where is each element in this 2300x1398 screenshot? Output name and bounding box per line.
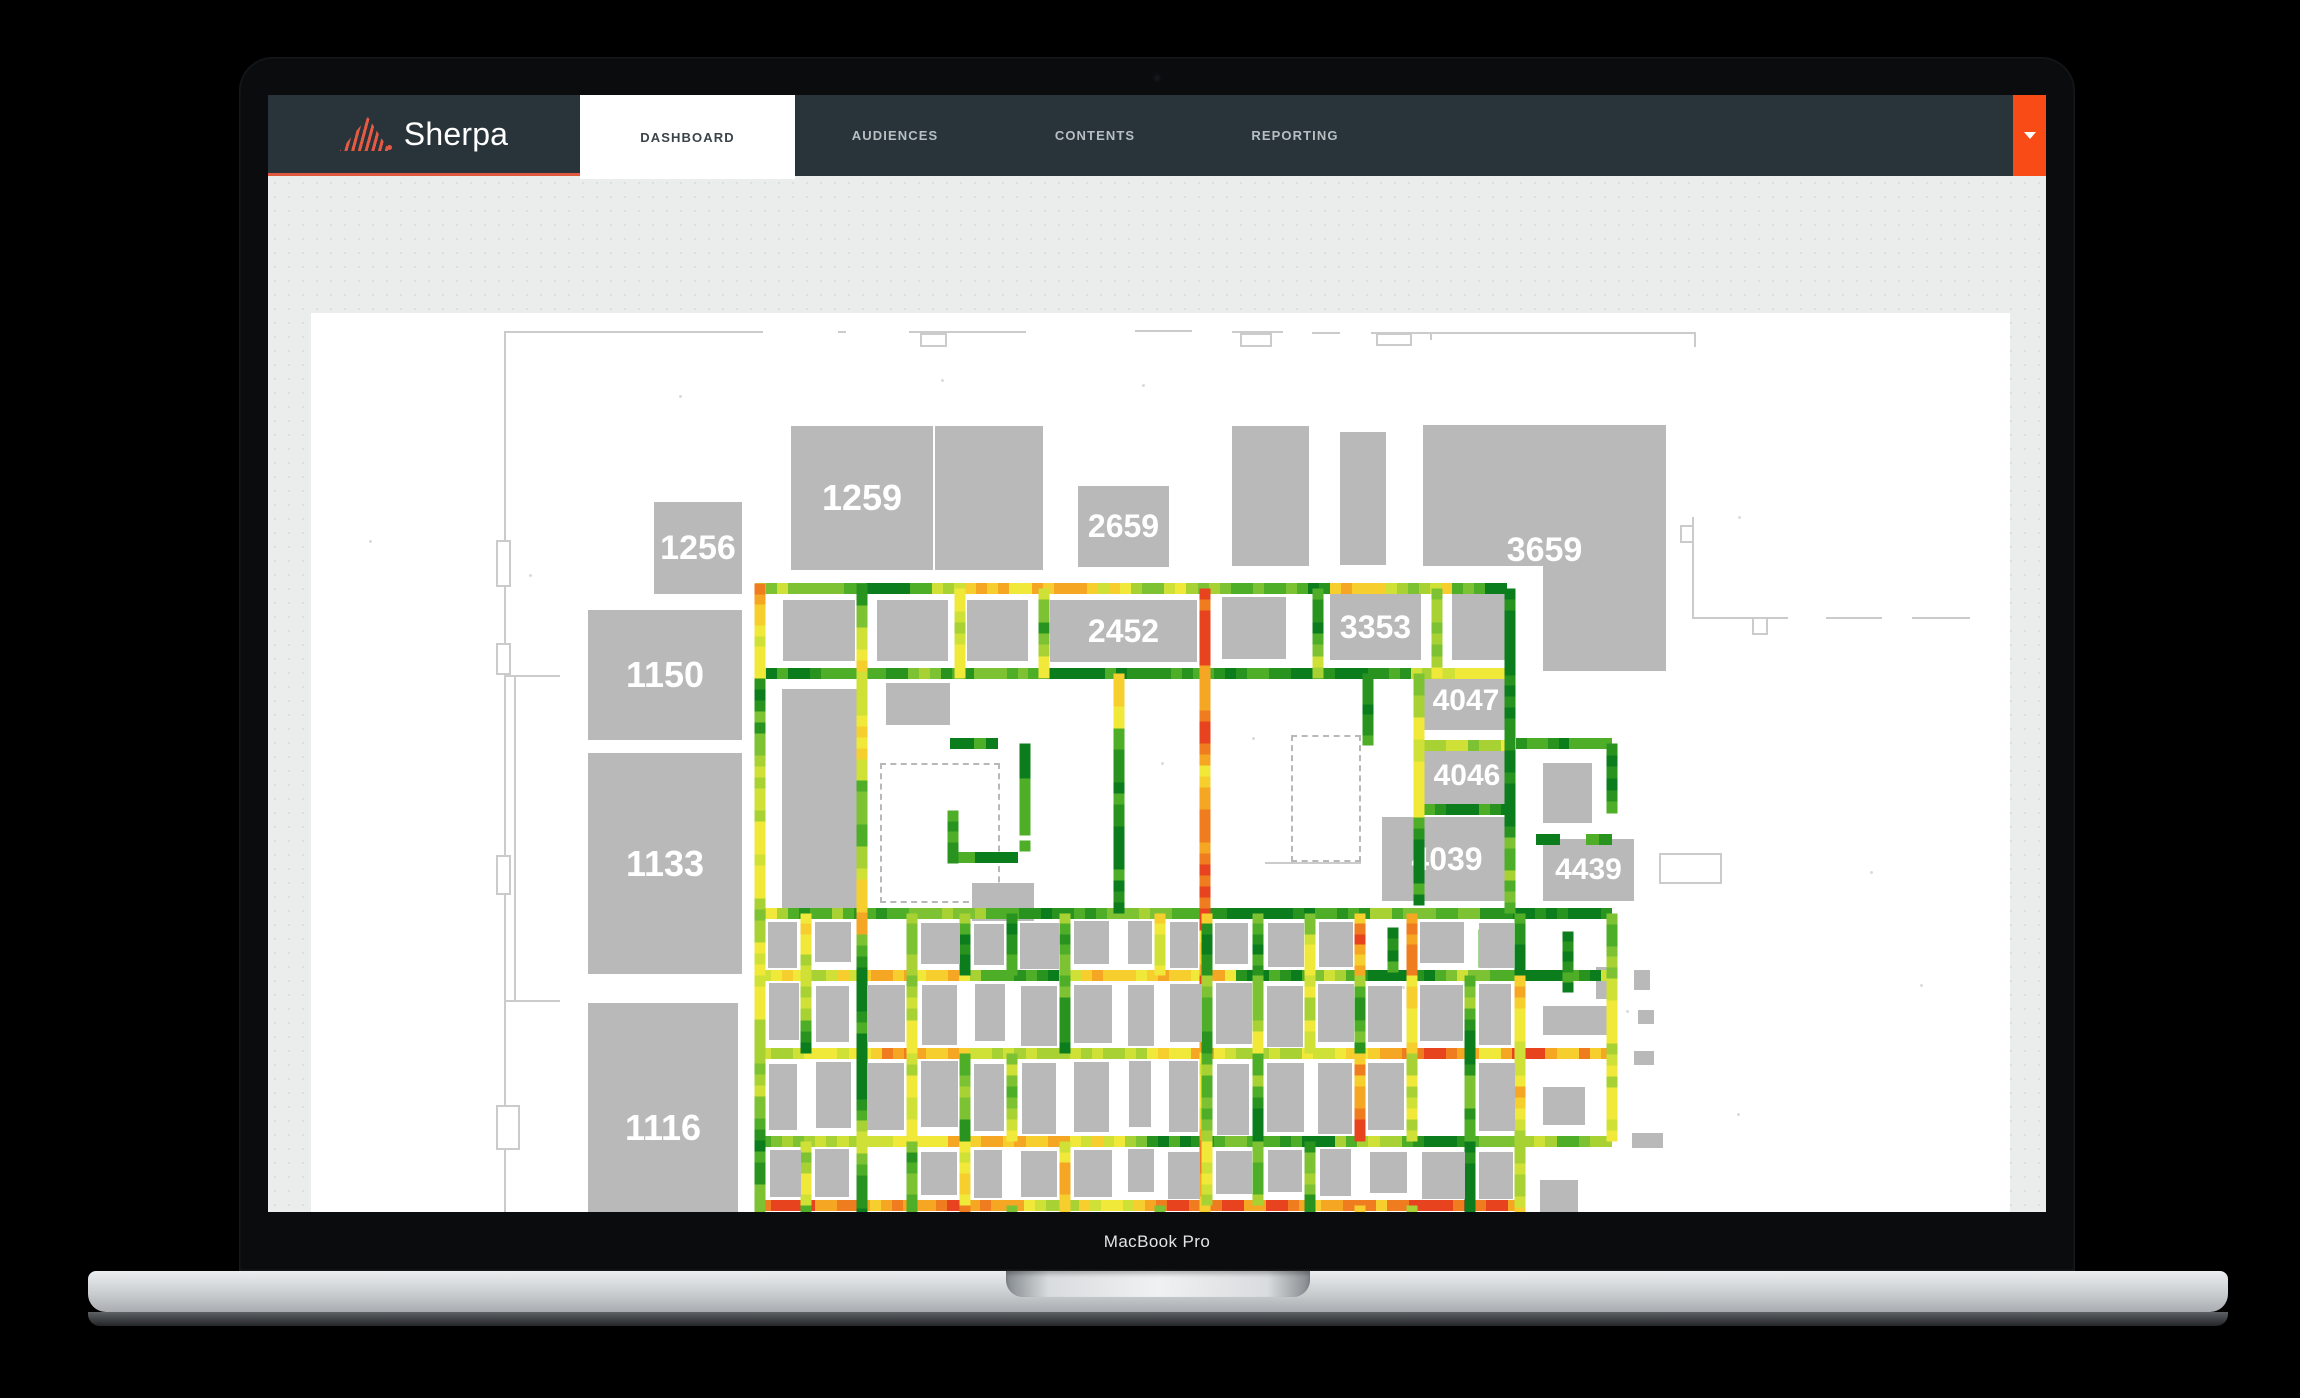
booth [1319,922,1353,967]
booth [770,1150,801,1197]
booth [974,1064,1004,1131]
heatmap-path [1202,975,1213,1053]
booth-3659: 3659 [1423,425,1666,566]
heatmap-path [1020,840,1031,851]
booth [815,922,851,963]
booth [1267,986,1303,1048]
plan-marker-dot [1142,384,1145,387]
booth [1128,985,1153,1046]
booth [1479,984,1511,1045]
heatmap-path [1424,804,1512,815]
booth [1215,923,1248,963]
heatmap-path [1060,1205,1071,1212]
booth [922,985,957,1045]
heatmap-path [1305,1205,1316,1212]
booth [974,1150,1002,1198]
heatmap-path [1465,975,1476,1212]
wall-line [504,331,506,1212]
booth [921,1061,958,1126]
booth [1340,432,1386,565]
wall-line [504,675,560,677]
booth-4439: 4439 [1543,839,1634,901]
heatmap-path [1363,673,1374,745]
booth [1543,1087,1585,1125]
heatmap-path [760,1048,1612,1059]
wall-outline-room [1659,853,1722,884]
booth [1268,923,1304,966]
heatmap-path [907,1141,918,1205]
heatmap-path [1515,913,1526,975]
booth [1268,1150,1303,1192]
macbook-screen: Sherpa DASHBOARD AUDIENCES CONTENTS REPO… [268,95,2046,1212]
heatmap-path [1305,913,1316,975]
booth-label: 3353 [1340,609,1411,646]
macbook-base [88,1271,2228,1312]
wall-line [1694,332,1696,347]
heatmap-path [1536,834,1560,845]
heatmap-path [755,583,1508,594]
macbook-lid: Sherpa DASHBOARD AUDIENCES CONTENTS REPO… [239,57,2075,1271]
heatmap-path [1515,975,1526,1212]
heatmap-path [1305,975,1316,1053]
wall-outline-room [1680,525,1694,543]
booth [1368,986,1402,1042]
heatmap-path [960,913,971,975]
booth-1256: 1256 [654,502,742,594]
heatmap-path [960,1205,971,1212]
booth-label: 1259 [822,477,902,519]
booth [877,600,948,661]
heatmap-path [1155,1205,1166,1212]
heatmap-path [1313,588,1324,678]
venue-floorplan-heatmap[interactable]: 1256125926591150113311162452335336594047… [311,313,2010,1212]
booth [1074,985,1112,1042]
heatmap-path [950,738,998,749]
heatmap-path [755,668,1510,679]
heatmap-path [1007,1053,1018,1141]
heatmap-path [1202,1141,1213,1205]
booth [1479,1063,1515,1130]
device-label: MacBook Pro [239,1212,2075,1271]
heatmap-path [1305,1141,1316,1205]
wall-line [1265,862,1361,864]
heatmap-path [907,1205,918,1212]
booth-label: 1256 [660,529,736,568]
heatmap-path [760,1136,1612,1147]
brand-name: Sherpa [404,116,508,153]
booth [769,983,800,1040]
wall-line [1430,332,1694,334]
plan-marker-dot [369,540,372,543]
booth [1368,1063,1403,1130]
booth-1133: 1133 [588,753,742,974]
booth-3353: 3353 [1330,594,1421,660]
tab-audiences[interactable]: AUDIENCES [795,95,995,176]
wall-outline-room [496,855,511,895]
tab-reporting[interactable]: REPORTING [1195,95,1395,176]
heatmap-path [1424,740,1512,751]
heatmap-path [1563,931,1574,992]
heatmap-path [1007,1205,1018,1212]
booth-label: 4439 [1555,853,1622,887]
booth [1170,922,1199,967]
booth [1021,986,1057,1046]
heatmap-path [1060,913,1071,975]
heatmap-path [1355,1205,1366,1212]
heatmap-path [1253,1141,1264,1205]
wall-line [1826,617,1882,619]
heatmap-path [801,1205,812,1212]
heatmap-path [1202,1053,1213,1141]
dashed-room-outline [880,763,1000,903]
booth [921,923,960,964]
plan-marker-dot [1737,1113,1740,1116]
heatmap-path [960,1141,971,1205]
booth [1169,1061,1198,1132]
booth [783,600,855,661]
wall-outline-room [920,333,947,347]
booth-4046: 4046 [1424,747,1510,805]
heatmap-path [907,975,918,1053]
booth [867,985,904,1042]
plan-marker-dot [1920,984,1923,987]
heatmap-path [1253,1053,1264,1141]
booth [1634,1051,1654,1065]
booth-1259: 1259 [791,426,933,570]
heatmap-path [1355,975,1366,1053]
booth-2659: 2659 [1078,486,1169,567]
booth [1543,1006,1610,1035]
heatmap-path [1039,588,1050,678]
booth [886,683,950,725]
booth-label: 1150 [626,654,704,696]
booth [815,1149,849,1196]
booth [1370,1152,1407,1193]
plan-marker-dot [1870,871,1873,874]
booth [1168,1152,1200,1200]
account-dropdown-button[interactable] [2013,95,2046,176]
heatmap-path [955,588,966,678]
booth-label: 3659 [1507,531,1583,570]
booth [1217,1064,1249,1136]
heatmap-path [1505,588,1516,913]
booth [1318,984,1353,1041]
booth [1129,1061,1151,1127]
wall-outline-room [496,1105,520,1150]
booth [768,922,797,968]
booth [1543,763,1592,823]
booth-1150: 1150 [588,610,742,740]
chevron-down-icon [2024,132,2036,139]
heatmap-path [907,1053,918,1141]
heatmap-path [1414,673,1425,905]
booth [1128,1149,1155,1192]
heatmap-path [1607,913,1618,1141]
heatmap-path [1202,913,1213,975]
heatmap-path [801,913,812,975]
booth [1420,985,1463,1041]
heatmap-path [1155,913,1166,975]
booth [1021,1151,1057,1197]
booth [1216,983,1252,1044]
heatmap-path [1020,743,1031,835]
booth [1074,1150,1112,1197]
wall-outline-room [1752,617,1768,635]
heatmap-path [1060,975,1071,1053]
heatmap-path [1607,743,1618,813]
heatmap-path [1407,975,1418,1053]
wall-outline-room [1376,333,1412,346]
plan-marker-dot [1738,516,1741,519]
booth [1479,1152,1513,1199]
heatmap-path [907,913,918,975]
booth-label: 4046 [1434,759,1501,793]
wall-line [514,675,516,1000]
booth [1222,597,1286,659]
booth [1318,1063,1352,1134]
plan-marker-dot [679,395,682,398]
heatmap-path [953,852,1018,863]
booth [1422,1152,1465,1199]
booth-4047: 4047 [1424,672,1508,730]
sherpa-mountain-icon [340,117,392,151]
heatmap-path [1253,913,1264,975]
wall-line [1912,617,1970,619]
heatmap-path [1007,913,1018,975]
wall-line [1135,330,1192,332]
booth [782,689,866,917]
plan-marker-dot [1161,762,1164,765]
plan-marker-dot [1402,986,1405,989]
plan-marker-dot [1626,1010,1629,1013]
booth [1420,922,1463,963]
booth [1479,923,1514,968]
macbook-front-edge [88,1312,2228,1326]
booth [1632,1133,1663,1148]
booth-label: 1116 [625,1107,701,1149]
booth [1074,921,1109,963]
heatmap-path [1114,673,1125,913]
booth [921,1152,957,1195]
booth [1452,594,1508,660]
booth [1540,1180,1578,1212]
wall-line [1312,332,1340,334]
booth-2452: 2452 [1050,600,1197,662]
macbook-lid-notch [1006,1271,1310,1297]
booth-label: 2452 [1088,613,1159,650]
heatmap-path [1407,913,1418,975]
app-navbar: Sherpa DASHBOARD AUDIENCES CONTENTS REPO… [268,95,2046,176]
booth [816,1062,852,1128]
heatmap-path [801,975,812,1053]
booth [1543,566,1666,671]
heatmap-path [1407,1205,1418,1212]
booth [816,986,849,1042]
booth [1232,426,1309,566]
heatmap-path [1253,975,1264,1053]
booth [1020,923,1059,969]
plan-marker-dot [1252,737,1255,740]
heatmap-path [1516,738,1612,749]
wall-line [504,1000,560,1002]
booth [1634,970,1650,990]
booth [1638,1010,1654,1024]
heatmap-path [960,1053,971,1141]
plan-marker-dot [529,574,532,577]
wall-line [1692,617,1788,619]
booth [1216,1151,1253,1194]
heatmap-path [755,678,766,1212]
booth [935,426,1043,570]
wall-outline-room [1240,333,1272,347]
webcam-icon [1153,74,1161,82]
wall-line [838,331,846,333]
tab-dashboard[interactable]: DASHBOARD [580,95,795,179]
dashed-room-outline [1291,735,1361,862]
booth [1128,921,1153,964]
booth-label: 2659 [1088,508,1159,545]
booth [1320,1149,1351,1196]
heatmap-path [1388,927,1399,972]
heatmap-path [1407,1053,1418,1141]
booth [967,600,1028,661]
heatmap-path [1586,834,1612,845]
booth [1267,1063,1304,1132]
heatmap-path [755,908,1612,919]
dashboard-content: 1256125926591150113311162452335336594047… [268,176,2046,1212]
booth-label: 4047 [1433,684,1500,718]
heatmap-path [948,810,959,863]
booth [1170,984,1202,1042]
floorplan-card: 1256125926591150113311162452335336594047… [311,313,2010,1212]
brand-logo[interactable]: Sherpa [268,95,580,176]
booth [1022,1063,1056,1134]
wall-line [504,331,763,333]
heatmap-path [1355,1053,1366,1141]
booth [974,924,1004,966]
wall-outline-room [496,643,511,675]
booth-4039: 4039 [1382,817,1512,901]
wall-line [1430,332,1432,340]
heatmap-path [760,970,1612,981]
booth-1116: 1116 [588,1003,738,1212]
tab-contents[interactable]: CONTENTS [995,95,1195,176]
heatmap-path [1355,913,1366,975]
heatmap-path [1060,1141,1071,1205]
heatmap-path [755,583,766,678]
booth [975,984,1005,1041]
booth [1074,1062,1109,1131]
heatmap-path [1432,588,1443,678]
heatmap-path [801,1141,812,1205]
wall-outline-room [496,540,511,587]
booth-label: 1133 [626,843,704,885]
plan-marker-dot [941,379,944,382]
booth [769,1064,797,1130]
booth [867,1063,905,1129]
